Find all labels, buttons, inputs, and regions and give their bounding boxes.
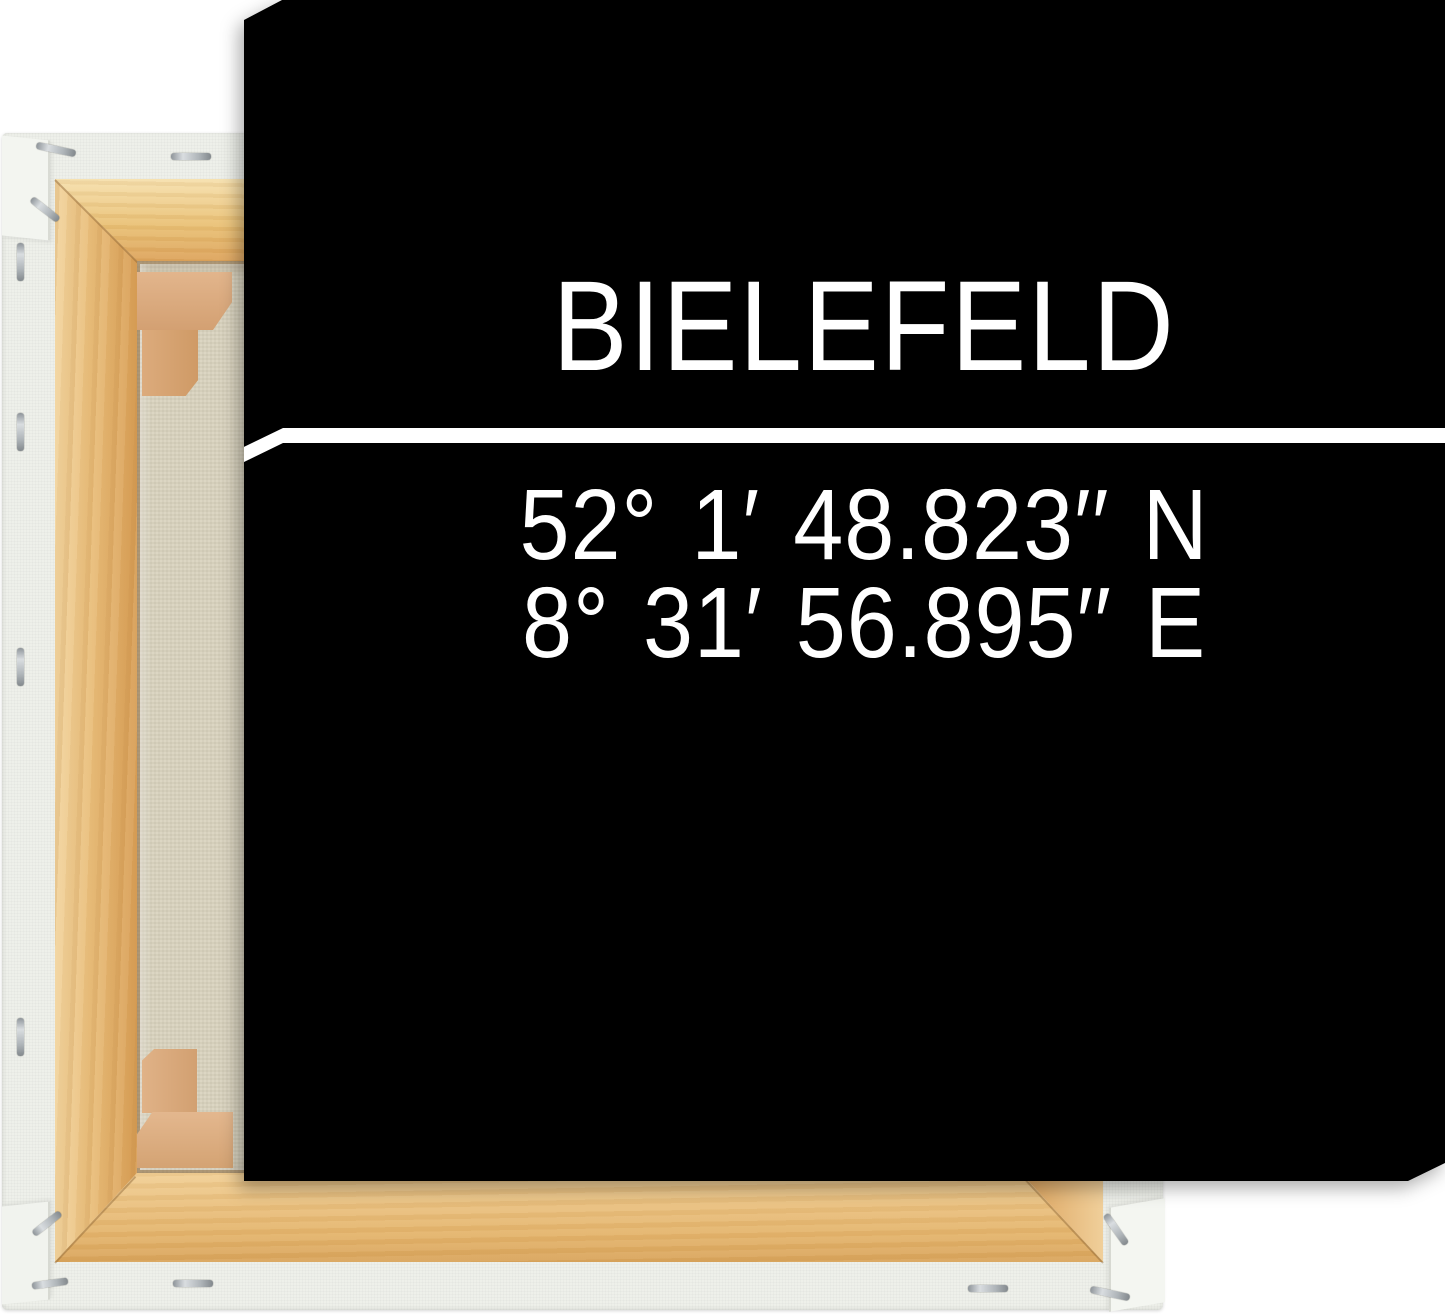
divider-line-edge-bend [244,428,283,463]
city-title: BIELEFELD [353,262,1376,392]
canvas-print-front: BIELEFELD 52° 1′ 48.823′′ N 8° 31′ 56.89… [0,0,1445,1314]
divider-line [283,428,1445,443]
canvas-product-photo: BIELEFELD 52° 1′ 48.823′′ N 8° 31′ 56.89… [0,0,1445,1314]
coordinates-latitude: 52° 1′ 48.823′′ N [341,474,1387,576]
coordinates-longitude: 8° 31′ 56.895′′ E [341,572,1387,674]
canvas-print-shadow: BIELEFELD 52° 1′ 48.823′′ N 8° 31′ 56.89… [0,0,1445,1314]
